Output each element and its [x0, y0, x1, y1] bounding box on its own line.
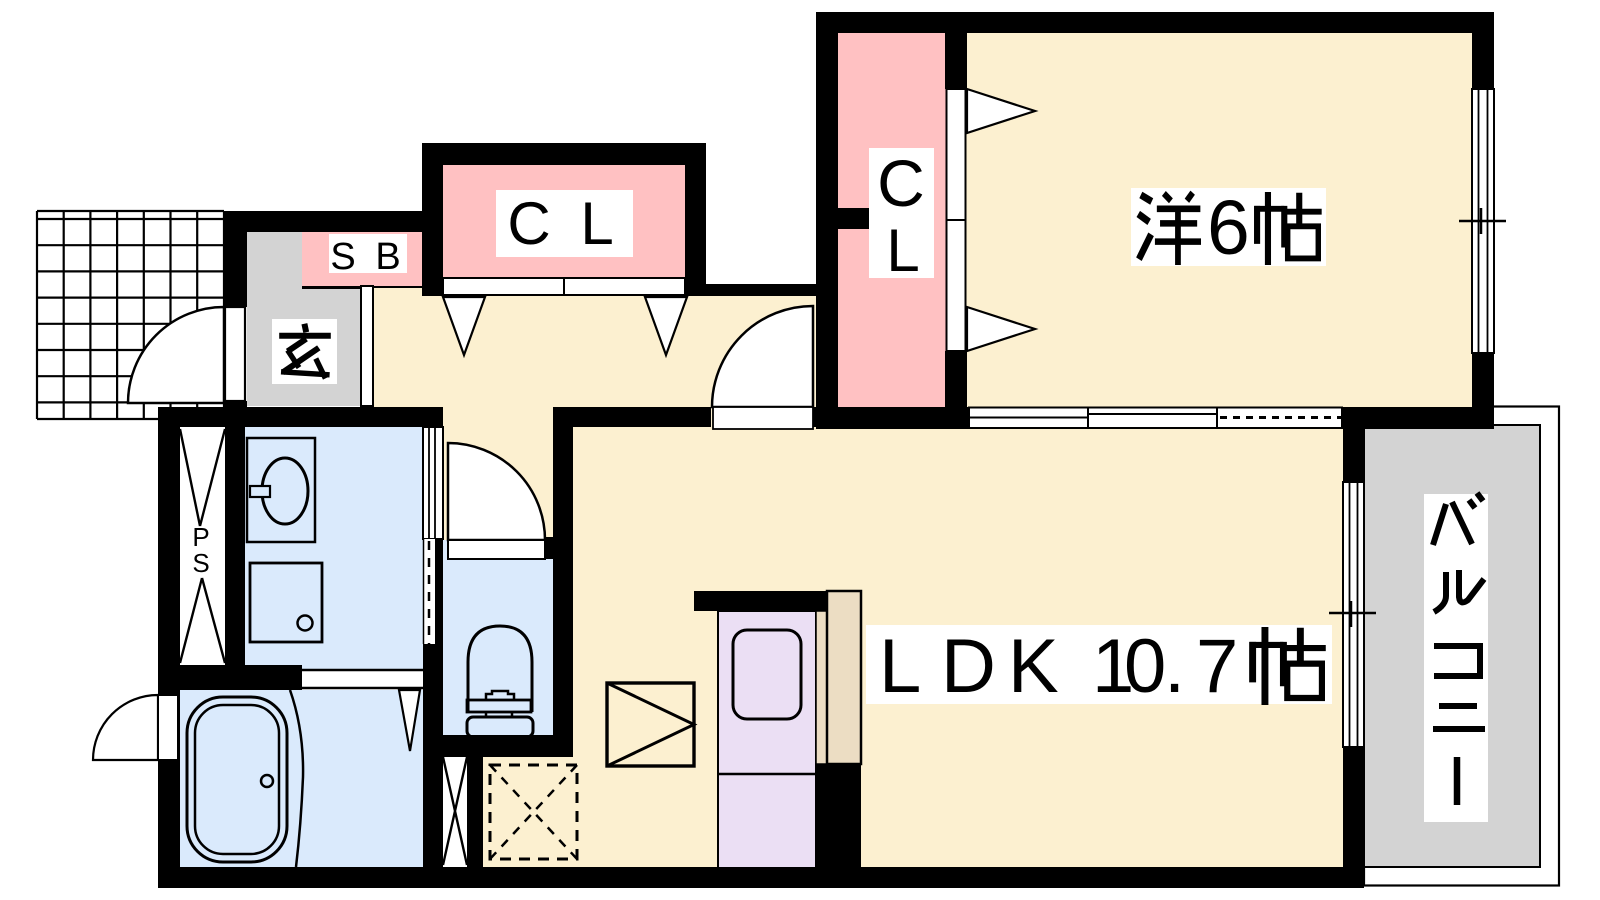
svg-text:B: B: [375, 236, 400, 278]
svg-text:0: 0: [1124, 624, 1166, 709]
svg-text:7: 7: [1196, 624, 1238, 709]
svg-text:L: L: [879, 624, 921, 709]
svg-text:.: .: [1164, 624, 1185, 709]
svg-text:6: 6: [1207, 185, 1250, 271]
svg-text:K: K: [1008, 624, 1059, 709]
svg-text:S: S: [330, 236, 355, 278]
svg-text:C: C: [507, 190, 550, 257]
svg-text:L: L: [580, 190, 613, 257]
svg-text:S: S: [192, 548, 209, 578]
svg-text:L: L: [886, 217, 919, 284]
svg-text:D: D: [941, 624, 996, 709]
svg-text:C: C: [877, 146, 925, 220]
